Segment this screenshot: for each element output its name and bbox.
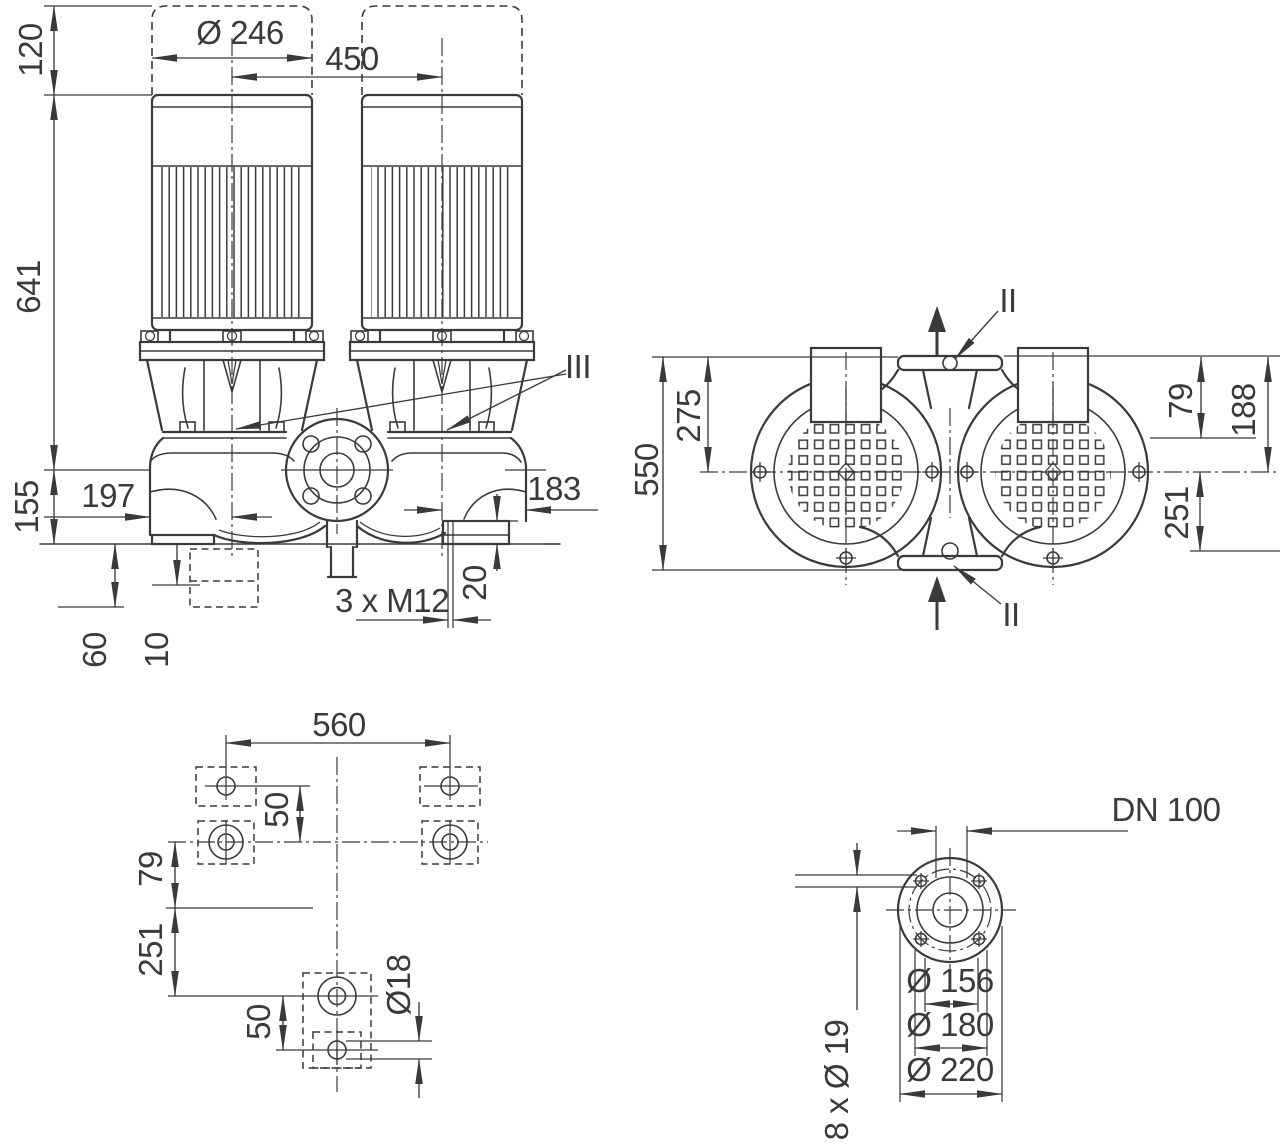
dim-label-560: 560 [312,706,366,743]
note-label-3xM12: 3 x M12 [335,582,449,619]
plan-view: II II 550 275 79 188 251 [628,282,1280,633]
dim-label-50-lower: 50 [240,1004,277,1040]
dim-label-20: 20 [456,565,493,601]
dim-label-641: 641 [10,260,47,314]
seal-leader-right [447,370,566,430]
bottom-port-flange [860,518,1040,570]
flange-face [886,848,1016,975]
dim-label-188: 188 [1225,383,1262,437]
dim-label-hole-diameter: Ø18 [380,955,417,1016]
top-port-flange [860,356,1040,408]
dim-label-120: 120 [12,23,49,77]
ref-label-II-bottom: II [1002,596,1019,633]
label-DN100: DN 100 [1112,791,1221,828]
plan-view-dimensions: 550 275 79 188 251 [628,356,1280,570]
dim-label-79-plan: 79 [1162,383,1199,419]
dim-label-155: 155 [8,480,45,534]
base-plan-dimensions: 560 50 79 251 50 Ø18 [132,706,450,1098]
note-label-bolt-holes: 8 x Ø 19 [818,1020,855,1141]
ref-label-III: III [565,348,591,385]
dim-label-motor-diameter: Ø 246 [196,14,283,51]
pump-dimensional-drawing: 120 641 155 Ø 246 450 197 183 20 3 x [0,0,1280,1144]
dim-label-50-upper: 50 [258,792,295,828]
dim-label-outer-diameter: Ø 220 [906,1051,994,1088]
dim-label-183: 183 [527,470,581,507]
port-leader-top [955,311,998,359]
dim-label-pilot-diameter: Ø 156 [906,962,993,999]
dim-label-450: 450 [325,40,379,77]
flange-detail-view: DN 100 Ø 156 Ø 180 Ø 220 8 x Ø 19 [795,791,1221,1140]
dim-label-550: 550 [628,443,665,497]
base-plan-view: 560 50 79 251 50 Ø18 [132,706,488,1098]
flange-dimensions: DN 100 Ø 156 Ø 180 Ø 220 8 x Ø 19 [795,791,1221,1140]
ref-label-II-top: II [999,282,1016,319]
vent-plug [943,356,957,370]
seal-leader-left [236,374,566,429]
foundation-recess [190,549,258,607]
dim-label-79-foot: 79 [132,851,169,887]
dim-label-251-plan: 251 [1158,486,1195,540]
dim-label-275: 275 [670,389,707,443]
front-view-dimensions: 120 641 155 Ø 246 450 197 183 20 3 x [8,6,598,668]
dim-label-bolt-circle: Ø 180 [906,1006,994,1043]
dim-label-197: 197 [81,477,135,514]
dimensional-drawing-canvas: 120 641 155 Ø 246 450 197 183 20 3 x [0,0,1280,1144]
left-foot-pads [196,767,256,864]
dim-label-60: 60 [76,632,113,668]
port-leader-bottom [954,566,1001,604]
dim-label-10: 10 [138,632,175,668]
front-elevation-view: 120 641 155 Ø 246 450 197 183 20 3 x [8,6,598,668]
left-motor-cooling-fins [161,167,303,317]
left-casing-foot [152,535,214,544]
right-foot-pads [420,767,480,864]
right-motor-cooling-fins [371,167,513,317]
dim-label-251-foot: 251 [132,923,169,977]
